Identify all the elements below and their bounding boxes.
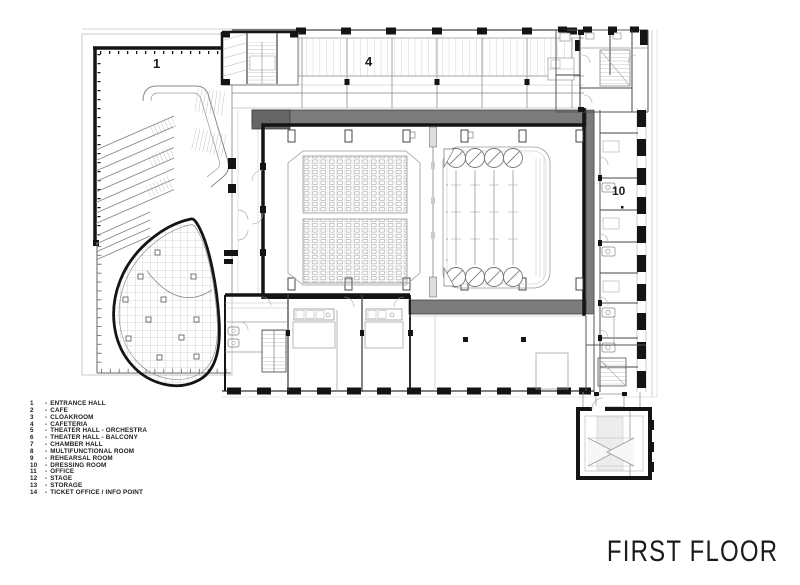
legend-item: 14-TICKET OFFICE / INFO POINT [30, 490, 147, 497]
room-number-dressing-room: 10 [612, 185, 625, 197]
room-number-cafeteria: 4 [365, 55, 372, 68]
legend-item: 11-OFFICE [30, 469, 147, 476]
legend-item: 3-CLOAKROOM [30, 415, 147, 422]
legend: 1-ENTRANCE HALL 2-CAFE 3-CLOAKROOM 4-CAF… [30, 401, 147, 497]
sheet-title: FIRST FLOOR [607, 535, 778, 569]
room-number-entrance-hall: 1 [153, 57, 160, 70]
legend-item: 1-ENTRANCE HALL [30, 401, 147, 408]
legend-item: 12-STAGE [30, 476, 147, 483]
legend-item: 10-DRESSING ROOM [30, 463, 147, 470]
northwest-stair-block [222, 32, 298, 86]
floor-plan-sheet: 1 4 10 1-ENTRANCE HALL 2-CAFE 3-CLOAKROO… [0, 0, 800, 585]
floor-plan-drawing [0, 0, 800, 585]
